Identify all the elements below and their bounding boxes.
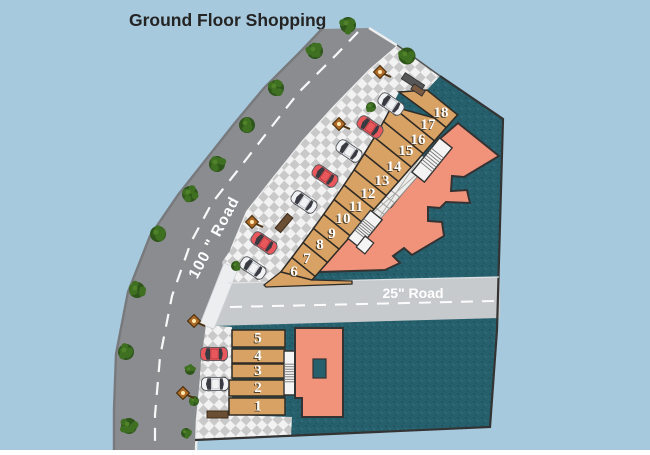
svg-text:25" Road: 25" Road	[382, 285, 443, 301]
svg-text:3: 3	[254, 363, 262, 379]
svg-text:2: 2	[254, 380, 262, 396]
svg-text:18: 18	[434, 105, 449, 121]
svg-text:6: 6	[290, 264, 298, 280]
svg-text:9: 9	[328, 226, 336, 242]
svg-text:7: 7	[303, 251, 311, 267]
svg-text:16: 16	[411, 132, 427, 148]
svg-text:5: 5	[254, 331, 262, 347]
svg-text:Ground Floor Shopping: Ground Floor Shopping	[129, 10, 326, 30]
svg-text:1: 1	[254, 399, 262, 415]
svg-text:14: 14	[387, 159, 403, 175]
svg-text:8: 8	[316, 237, 324, 253]
svg-text:4: 4	[254, 348, 262, 364]
